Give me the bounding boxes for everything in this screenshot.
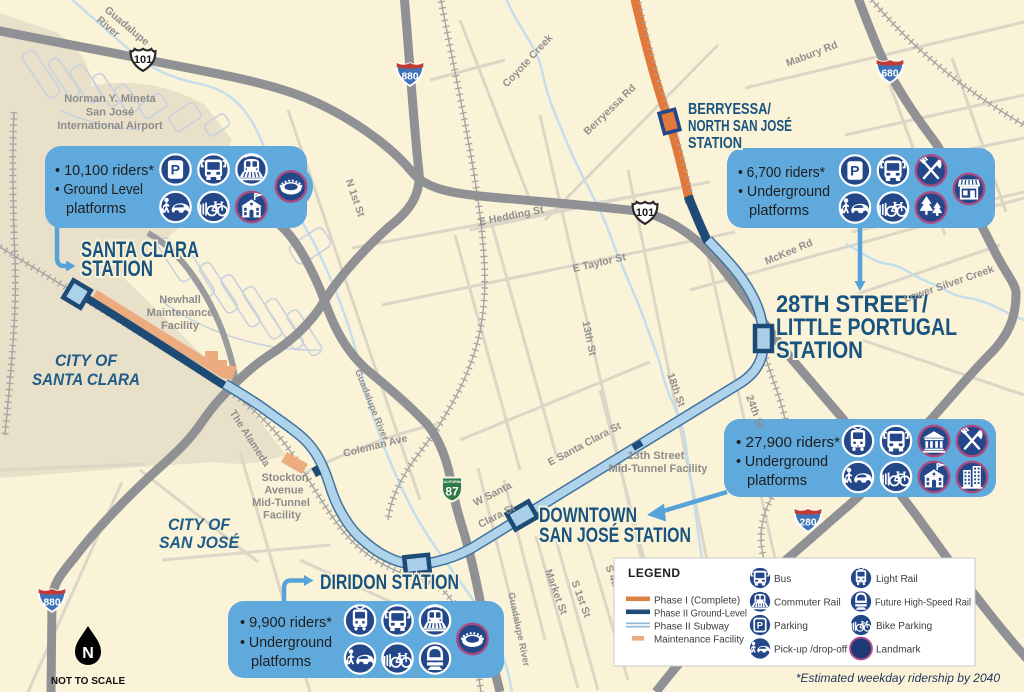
svg-text:International Airport: International Airport: [57, 120, 163, 132]
svg-text:SANTA CLARA: SANTA CLARA: [32, 371, 140, 389]
svg-text:• Ground Level: • Ground Level: [55, 182, 143, 198]
svg-text:SAN JOSÉ: SAN JOSÉ: [159, 533, 240, 552]
svg-text:280: 280: [799, 518, 816, 529]
svg-text:Phase II Ground-Level: Phase II Ground-Level: [654, 609, 747, 620]
svg-text:101: 101: [134, 54, 152, 66]
svg-text:BERRYESSA/: BERRYESSA/: [688, 101, 772, 118]
svg-text:NORTH SAN JOSÉ: NORTH SAN JOSÉ: [688, 118, 792, 135]
svg-text:Landmark: Landmark: [876, 645, 921, 656]
svg-text:• Underground: • Underground: [240, 635, 332, 651]
svg-text:platforms: platforms: [251, 654, 311, 670]
svg-text:STATION: STATION: [81, 256, 153, 281]
svg-text:• Underground: • Underground: [738, 184, 830, 200]
svg-text:Bike Parking: Bike Parking: [876, 621, 932, 632]
svg-text:platforms: platforms: [66, 201, 126, 217]
svg-text:Avenue: Avenue: [264, 485, 303, 497]
svg-text:880: 880: [401, 72, 418, 83]
svg-text:CITY OF: CITY OF: [168, 516, 231, 534]
svg-text:SAN JOSÉ STATION: SAN JOSÉ STATION: [539, 524, 691, 547]
svg-text:680: 680: [881, 69, 898, 80]
svg-text:platforms: platforms: [749, 203, 809, 219]
svg-text:NOT TO SCALE: NOT TO SCALE: [51, 676, 126, 687]
svg-text:Maintenance: Maintenance: [147, 307, 214, 319]
svg-text:Norman Y. Mineta: Norman Y. Mineta: [64, 93, 156, 105]
svg-text:STATION: STATION: [776, 337, 863, 364]
svg-text:Commuter Rail: Commuter Rail: [774, 598, 841, 609]
svg-text:• 10,100 riders*: • 10,100 riders*: [55, 163, 154, 179]
svg-text:Light Rail: Light Rail: [876, 574, 918, 585]
svg-text:CITY OF: CITY OF: [55, 352, 118, 370]
svg-text:13th Street: 13th Street: [628, 450, 685, 462]
svg-text:STATION: STATION: [688, 135, 742, 152]
svg-text:880: 880: [43, 598, 60, 609]
svg-text:Phase II Subway: Phase II Subway: [654, 622, 729, 633]
svg-text:• Underground: • Underground: [736, 454, 828, 470]
svg-text:87: 87: [445, 485, 459, 499]
svg-text:Mid-Tunnel: Mid-Tunnel: [252, 497, 310, 509]
svg-text:101: 101: [636, 207, 654, 219]
svg-text:Facility: Facility: [263, 510, 302, 522]
svg-text:Phase I (Complete): Phase I (Complete): [654, 596, 740, 607]
svg-text:• 27,900 riders*: • 27,900 riders*: [736, 435, 840, 451]
svg-text:Newhall: Newhall: [159, 294, 201, 306]
svg-text:Stockton: Stockton: [261, 472, 308, 484]
svg-text:Mid-Tunnel Facility: Mid-Tunnel Facility: [609, 463, 709, 475]
svg-text:platforms: platforms: [747, 473, 807, 489]
svg-text:N: N: [82, 645, 94, 662]
svg-text:Facility: Facility: [161, 320, 200, 332]
svg-text:Maintenance Facility: Maintenance Facility: [654, 635, 744, 646]
svg-text:Bus: Bus: [774, 574, 791, 585]
svg-text:DIRIDON STATION: DIRIDON STATION: [320, 570, 459, 594]
svg-text:• 6,700 riders*: • 6,700 riders*: [738, 165, 825, 181]
svg-text:Future High-Speed Rail: Future High-Speed Rail: [875, 598, 971, 609]
svg-text:San José: San José: [86, 107, 134, 119]
svg-text:Pick-up /drop-off: Pick-up /drop-off: [774, 645, 847, 656]
svg-text:Parking: Parking: [774, 621, 808, 632]
svg-text:LEGEND: LEGEND: [628, 566, 680, 580]
svg-text:CALIFORNIA: CALIFORNIA: [442, 480, 463, 484]
svg-text:• 9,900 riders*: • 9,900 riders*: [240, 615, 332, 631]
svg-text:*Estimated weekday ridership b: *Estimated weekday ridership by 2040: [796, 671, 1000, 685]
